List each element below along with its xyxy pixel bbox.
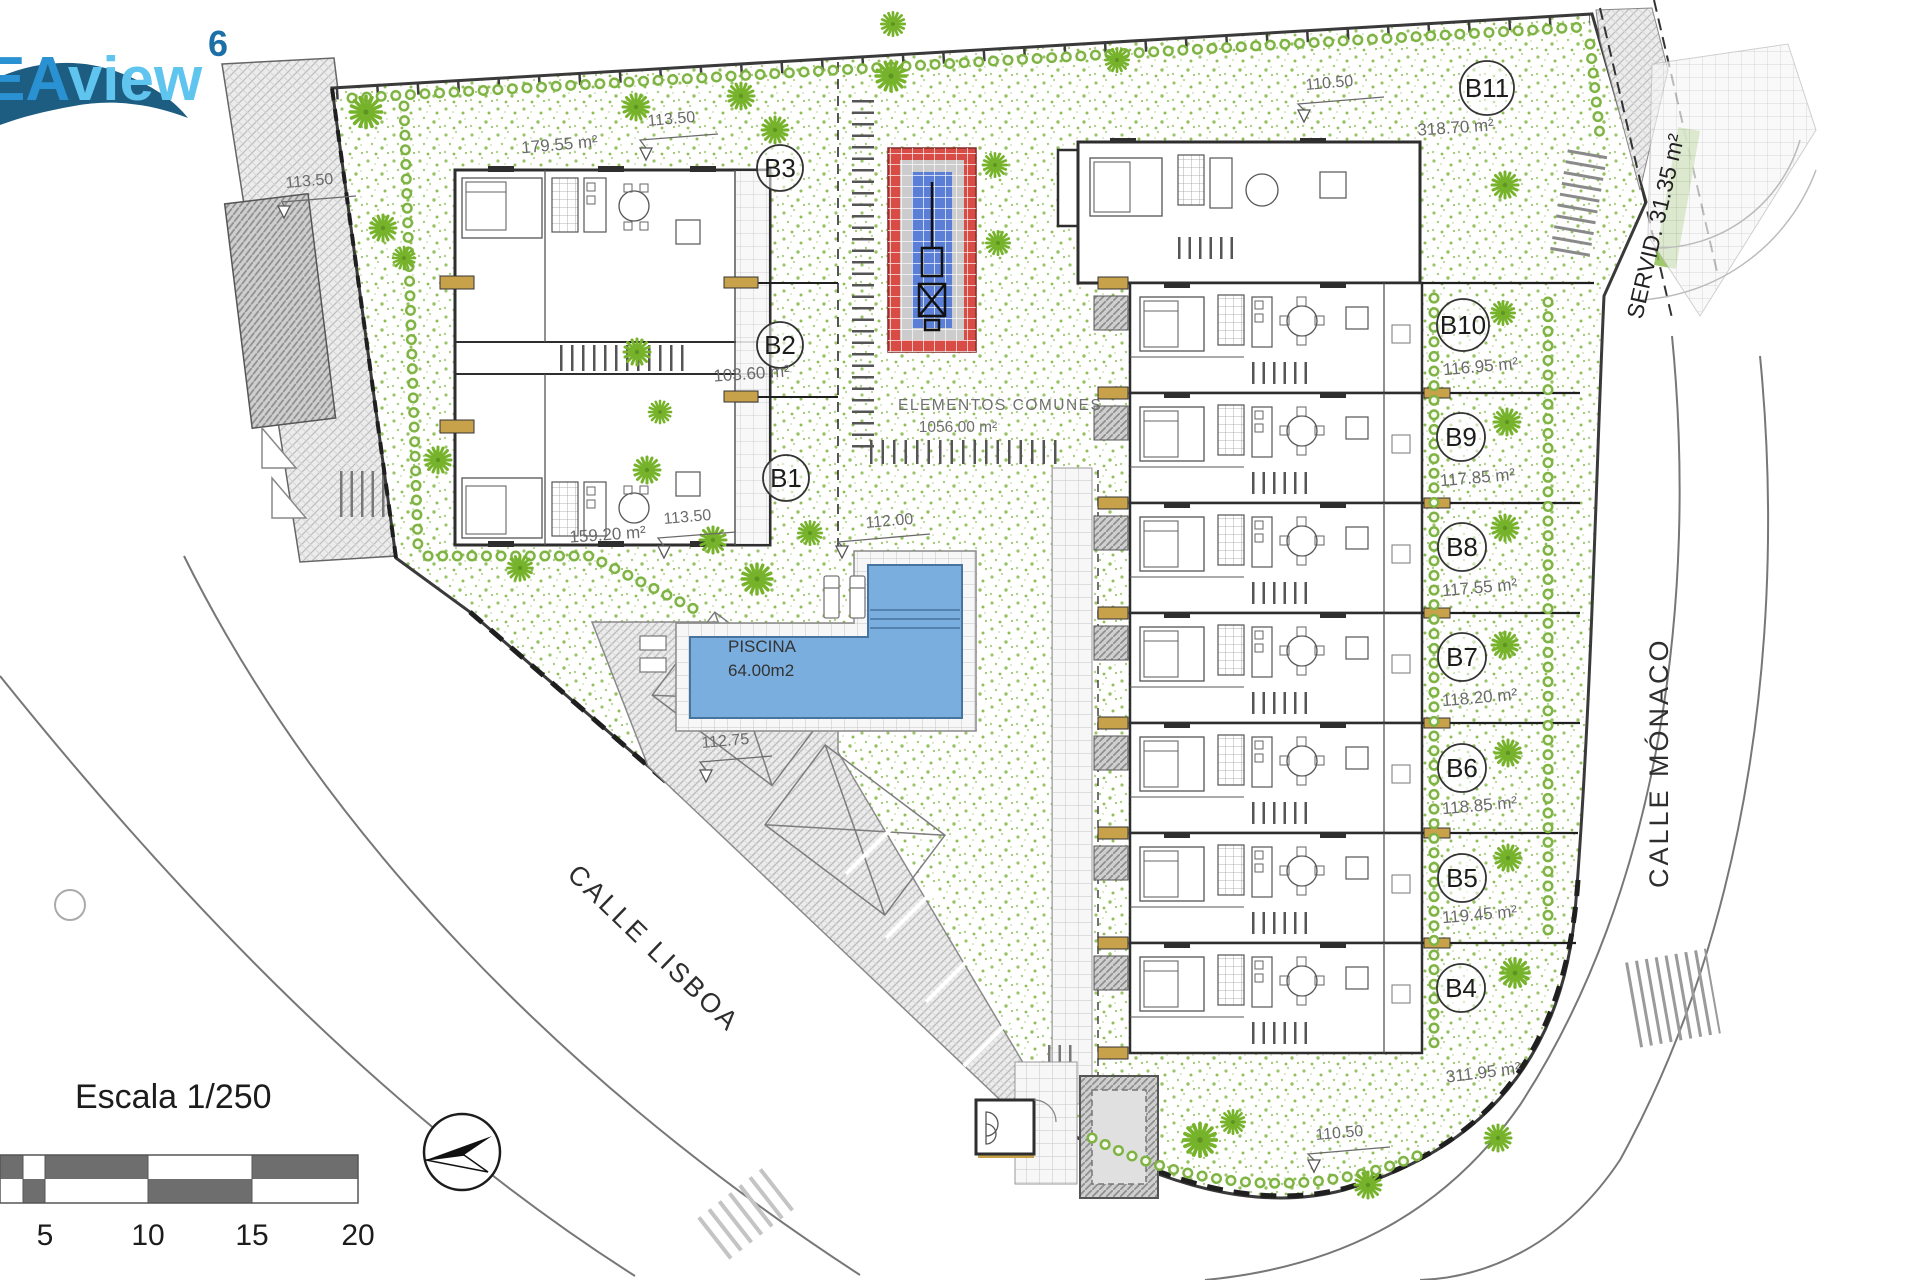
pool-area-value: 64.00m2 bbox=[728, 661, 794, 680]
scale-bar: Escala 1/250 5 10 15 20 bbox=[0, 1078, 375, 1252]
scale-title: Escala 1/250 bbox=[75, 1078, 272, 1116]
fountain-feature bbox=[888, 148, 976, 352]
scale-tick-20: 20 bbox=[341, 1219, 374, 1252]
pool-title: PISCINA bbox=[728, 637, 797, 656]
unit-id-b9: B9 bbox=[1445, 422, 1477, 452]
manhole bbox=[55, 890, 85, 920]
unit-label-b1: B1 bbox=[763, 455, 809, 501]
unit-label-b9: B9 bbox=[1437, 413, 1485, 461]
site-plan-svg: B3 B2 B1 B11 B10 B9 B8 B7 B6 B5 B4 179.5… bbox=[0, 0, 1920, 1280]
house-b11 bbox=[1058, 138, 1420, 283]
unit-id-b5: B5 bbox=[1446, 863, 1478, 893]
unit-id-b6: B6 bbox=[1446, 753, 1478, 783]
unit-label-b11: B11 bbox=[1460, 61, 1514, 115]
logo: EAview 6 bbox=[0, 23, 228, 130]
logo-prefix: EA bbox=[0, 45, 69, 114]
unit-label-b4: B4 bbox=[1437, 964, 1485, 1012]
site-plan-page: B3 B2 B1 B11 B10 B9 B8 B7 B6 B5 B4 179.5… bbox=[0, 0, 1920, 1280]
unit-label-b10: B10 bbox=[1437, 299, 1489, 351]
unit-id-b1: B1 bbox=[770, 463, 802, 493]
unit-label-b6: B6 bbox=[1438, 744, 1486, 792]
street-name-monaco: CALLE MÓNACO bbox=[1643, 637, 1674, 888]
common-area-title: ELEMENTOS COMUNES bbox=[898, 397, 1102, 414]
logo-suffix: view bbox=[68, 45, 203, 114]
unit-id-b10: B10 bbox=[1440, 310, 1486, 340]
unit-id-b3: B3 bbox=[764, 153, 796, 183]
unit-id-b2: B2 bbox=[764, 330, 796, 360]
svg-text:EAview: EAview bbox=[0, 45, 203, 114]
unit-id-b4: B4 bbox=[1445, 973, 1477, 1003]
scale-tick-10: 10 bbox=[131, 1219, 164, 1252]
unit-id-b8: B8 bbox=[1446, 532, 1478, 562]
entrance-b2 bbox=[724, 277, 758, 288]
north-arrow-icon bbox=[424, 1114, 500, 1190]
logo-superscript: 6 bbox=[208, 23, 228, 64]
crosswalk-lisboa bbox=[713, 1185, 782, 1239]
street-name-lisboa: CALLE LISBOA bbox=[562, 859, 746, 1038]
unit-id-b7: B7 bbox=[1446, 642, 1478, 672]
entrance-b1 bbox=[724, 391, 758, 402]
unit-label-b7: B7 bbox=[1438, 633, 1486, 681]
crosswalk-monaco bbox=[1633, 991, 1714, 1005]
unit-label-b3: B3 bbox=[757, 145, 803, 191]
unit-label-b5: B5 bbox=[1438, 854, 1486, 902]
unit-label-b8: B8 bbox=[1438, 523, 1486, 571]
scale-tick-15: 15 bbox=[235, 1219, 268, 1252]
scale-tick-5: 5 bbox=[37, 1219, 54, 1252]
common-area-value: 1056.00 m² bbox=[919, 419, 997, 436]
unit-id-b11: B11 bbox=[1465, 73, 1509, 103]
